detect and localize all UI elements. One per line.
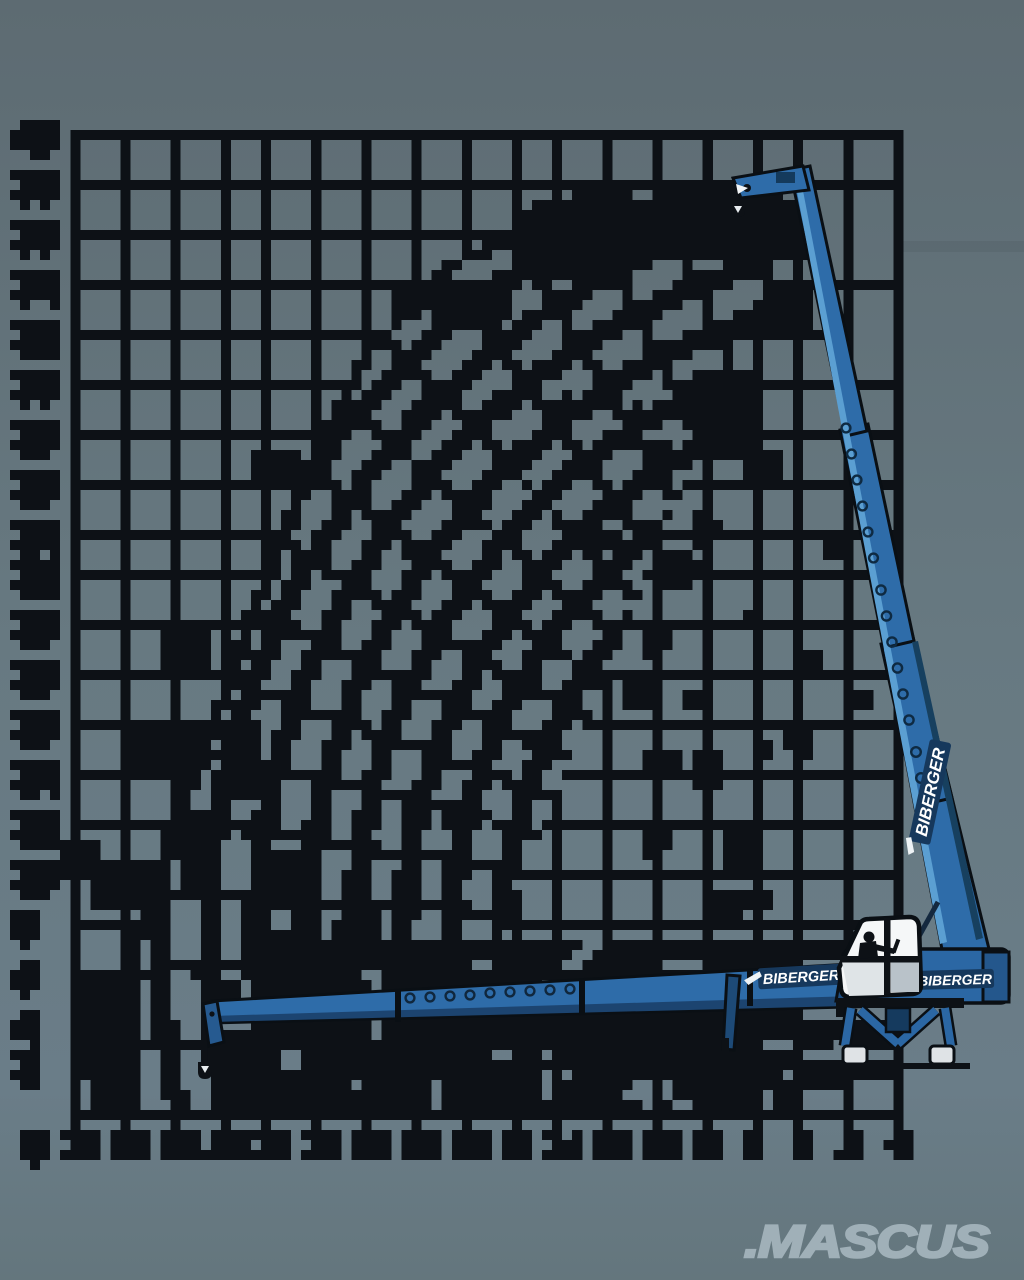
svg-text:BIBERGER: BIBERGER: [918, 971, 993, 989]
svg-text:.MASCUS: .MASCUS: [744, 1217, 989, 1267]
